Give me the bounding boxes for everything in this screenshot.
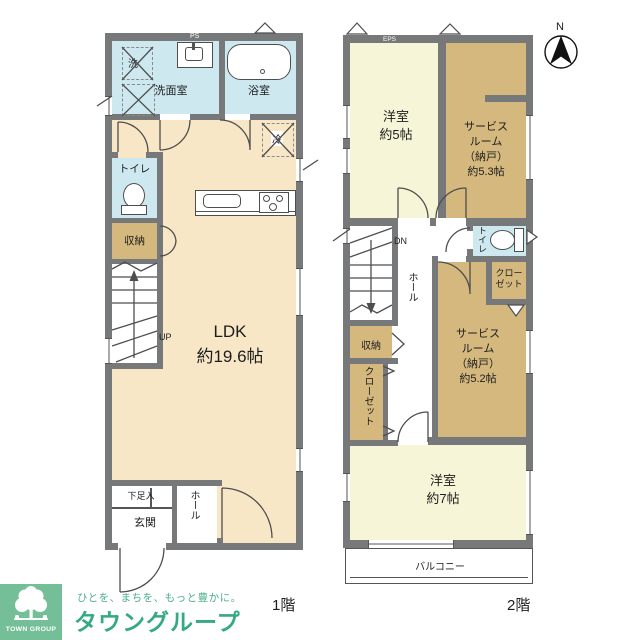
floor-plan: PS 洗 洗面室 浴室 冷 トイレ 収納 UP LDK 約19.6帖 下足入 玄… [0,0,640,640]
logo-badge-text: TOWN GROUP [0,626,62,633]
logo-tree [0,0,640,640]
logo-brand: タウングループ [74,603,241,637]
